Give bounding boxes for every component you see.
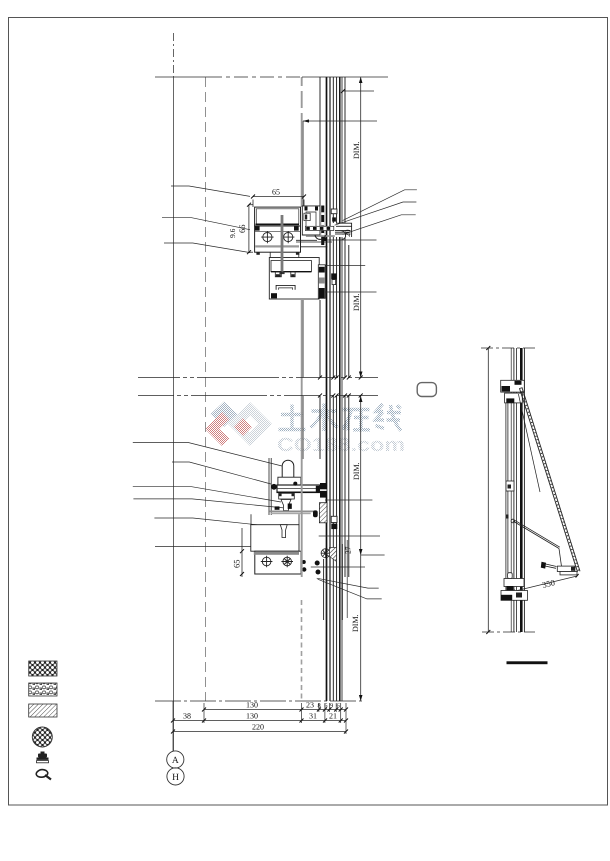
svg-text:220: 220 — [252, 723, 264, 732]
svg-text:21: 21 — [329, 712, 337, 721]
svg-text:130: 130 — [246, 701, 258, 710]
svg-text:DIM.: DIM. — [352, 141, 361, 159]
svg-text:130: 130 — [246, 712, 258, 721]
svg-text:H: H — [172, 773, 179, 783]
svg-text:9: 9 — [330, 703, 333, 710]
svg-text:CO188.com: CO188.com — [277, 435, 405, 456]
svg-text:9.6: 9.6 — [228, 228, 237, 238]
svg-text:DIM.: DIM. — [352, 462, 361, 480]
svg-text:23: 23 — [306, 701, 314, 710]
svg-text:65: 65 — [272, 188, 280, 197]
svg-text:27: 27 — [344, 546, 353, 554]
svg-text:A: A — [172, 756, 179, 766]
svg-text:20: 20 — [343, 229, 352, 237]
svg-text:DIM.: DIM. — [352, 293, 361, 311]
svg-text:38: 38 — [183, 712, 191, 721]
svg-text:8: 8 — [318, 703, 321, 710]
svg-text:31: 31 — [309, 712, 317, 721]
svg-text:DIM.: DIM. — [351, 614, 360, 632]
svg-text:65: 65 — [232, 560, 242, 569]
svg-text:66: 66 — [237, 225, 247, 234]
